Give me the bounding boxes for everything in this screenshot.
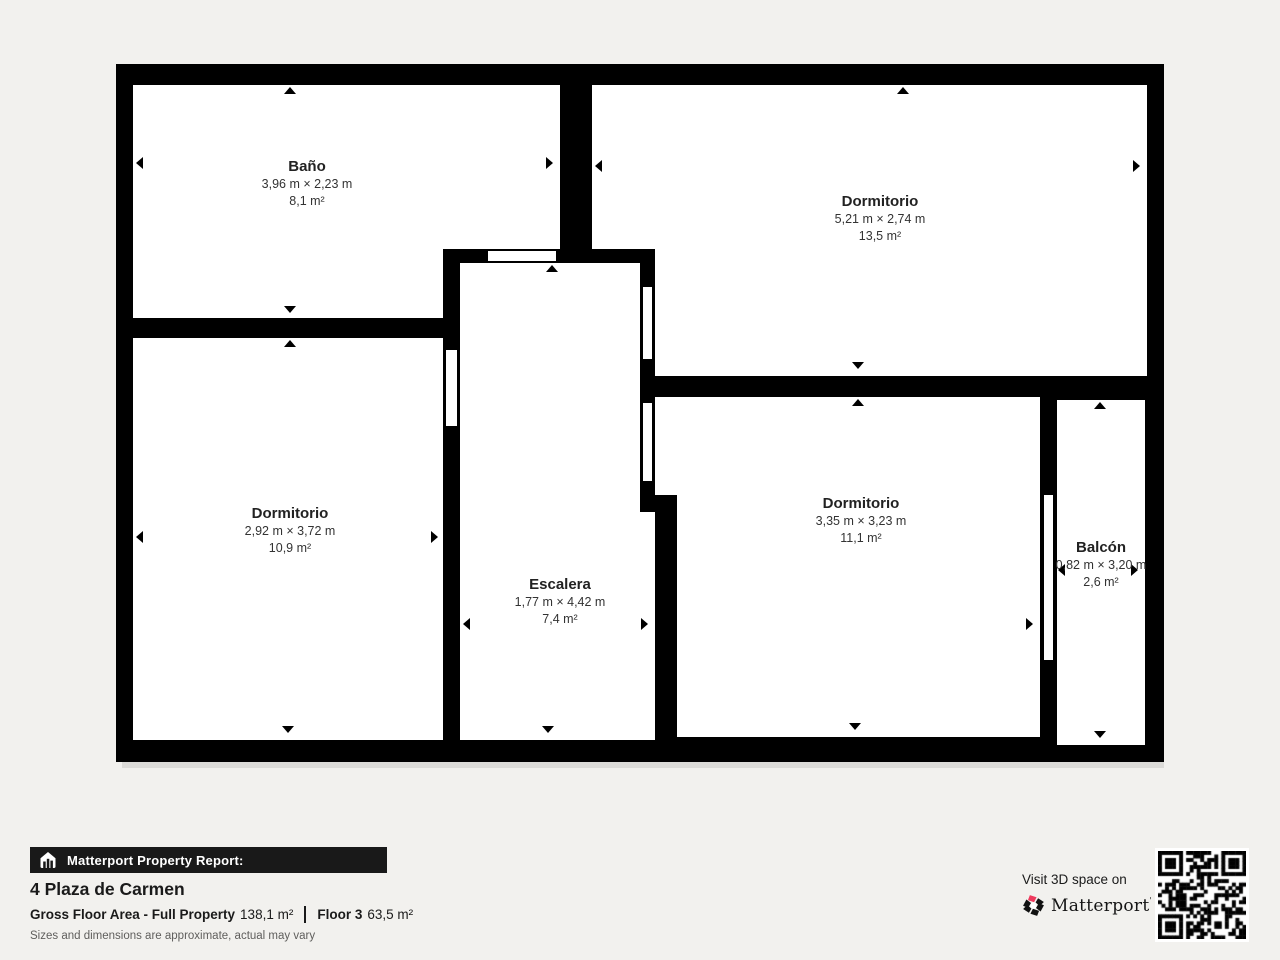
trademark-mark: ' [1149,896,1152,905]
room-area: 2,6 m² [1056,575,1147,590]
wall [640,376,1040,397]
door-opening [488,251,556,261]
plan-shadow [122,762,1164,768]
report-banner: Matterport Property Report: [30,847,387,873]
room-label-balcon: Balcón 0,82 m × 3,20 m 2,6 m² [1056,539,1147,590]
dimension-arrow-icon [1026,618,1033,630]
room-name: Baño [262,158,353,175]
dimension-arrow-icon [1094,731,1106,738]
area-divider [304,906,306,923]
room-name: Balcón [1056,539,1147,556]
room-dimensions: 3,96 m × 2,23 m [262,175,353,194]
matterport-logo-icon [1022,894,1045,917]
window-opening [1044,495,1053,660]
floor-label: Floor 3 [317,907,362,922]
room-dimensions: 5,21 m × 2,74 m [835,210,926,229]
room-dimensions: 3,35 m × 3,23 m [816,512,907,531]
room-label-bano: Baño 3,96 m × 2,23 m 8,1 m² [262,158,353,209]
room-dimensions: 1,77 m × 4,42 m [515,593,606,612]
dimension-arrow-icon [1094,402,1106,409]
dimension-arrow-icon [849,723,861,730]
window-opening [643,403,652,481]
qr-code [1155,848,1249,942]
room-dimensions: 0,82 m × 3,20 m [1056,556,1147,575]
dimension-arrow-icon [284,306,296,313]
room-name: Escalera [515,576,606,593]
room-name: Dormitorio [835,193,926,210]
room-label-dormitorio-1: Dormitorio 5,21 m × 2,74 m 13,5 m² [835,193,926,244]
dimension-arrow-icon [136,531,143,543]
dimension-arrow-icon [542,726,554,733]
window-opening [643,287,652,359]
gross-floor-area-value: 138,1 m² [240,907,293,922]
visit-3d-label: Visit 3D space on [1022,872,1127,887]
property-address: 4 Plaza de Carmen [30,879,185,900]
wall [565,64,592,263]
wall [116,318,460,338]
dimension-arrow-icon [463,618,470,630]
dimension-arrow-icon [641,618,648,630]
door-opening [446,350,457,426]
room-label-escalera: Escalera 1,77 m × 4,42 m 7,4 m² [515,576,606,627]
dimension-arrow-icon [282,726,294,733]
room-area: 13,5 m² [835,229,926,244]
room-area: 11,1 m² [816,531,907,546]
dimension-arrow-icon [852,399,864,406]
dimension-arrow-icon [546,265,558,272]
dimension-arrow-icon [595,160,602,172]
size-disclaimer: Sizes and dimensions are approximate, ac… [30,930,315,942]
gross-floor-area-label: Gross Floor Area - Full Property [30,907,235,922]
room-area: 7,4 m² [515,612,606,627]
dimension-arrow-icon [431,531,438,543]
room-dimensions: 2,92 m × 3,72 m [245,522,336,541]
dimension-arrow-icon [284,87,296,94]
room-area: 8,1 m² [262,194,353,209]
area-summary: Gross Floor Area - Full Property 138,1 m… [30,906,413,923]
wall [640,495,677,512]
room-label-dormitorio-2: Dormitorio 2,92 m × 3,72 m 10,9 m² [245,505,336,556]
matterport-brand: Matterport' [1022,894,1152,917]
room-dormitorio-3 [655,397,1040,737]
qr-code-canvas [1158,851,1246,939]
room-escalera [460,263,640,740]
dimension-arrow-icon [136,157,143,169]
room-label-dormitorio-3: Dormitorio 3,35 m × 3,23 m 11,1 m² [816,495,907,546]
floor-area-value: 63,5 m² [367,907,413,922]
dimension-arrow-icon [852,362,864,369]
room-name: Dormitorio [816,495,907,512]
report-banner-label: Matterport Property Report: [67,853,244,868]
dimension-arrow-icon [284,340,296,347]
dimension-arrow-icon [658,618,665,630]
house-icon [38,850,58,870]
dimension-arrow-icon [546,157,553,169]
room-name: Dormitorio [245,505,336,522]
matterport-wordmark: Matterport' [1051,896,1152,916]
dimension-arrow-icon [897,87,909,94]
room-area: 10,9 m² [245,541,336,556]
dimension-arrow-icon [1133,160,1140,172]
